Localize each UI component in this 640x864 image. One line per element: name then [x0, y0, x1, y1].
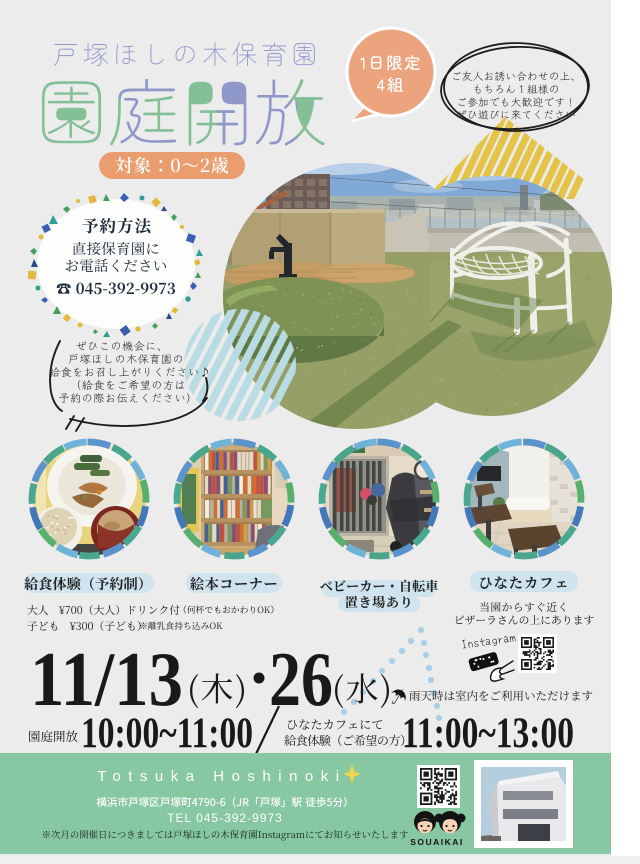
svg-text:SOUAIKAI: SOUAIKAI — [410, 837, 464, 847]
svg-text:Totsuka Hoshinoki: Totsuka Hoshinoki — [97, 768, 346, 785]
svg-text:11:00~13:00: 11:00~13:00 — [402, 710, 574, 757]
svg-text:TEL 045-392-9973: TEL 045-392-9973 — [167, 811, 283, 825]
svg-text:10:00~11:00: 10:00~11:00 — [81, 710, 253, 757]
